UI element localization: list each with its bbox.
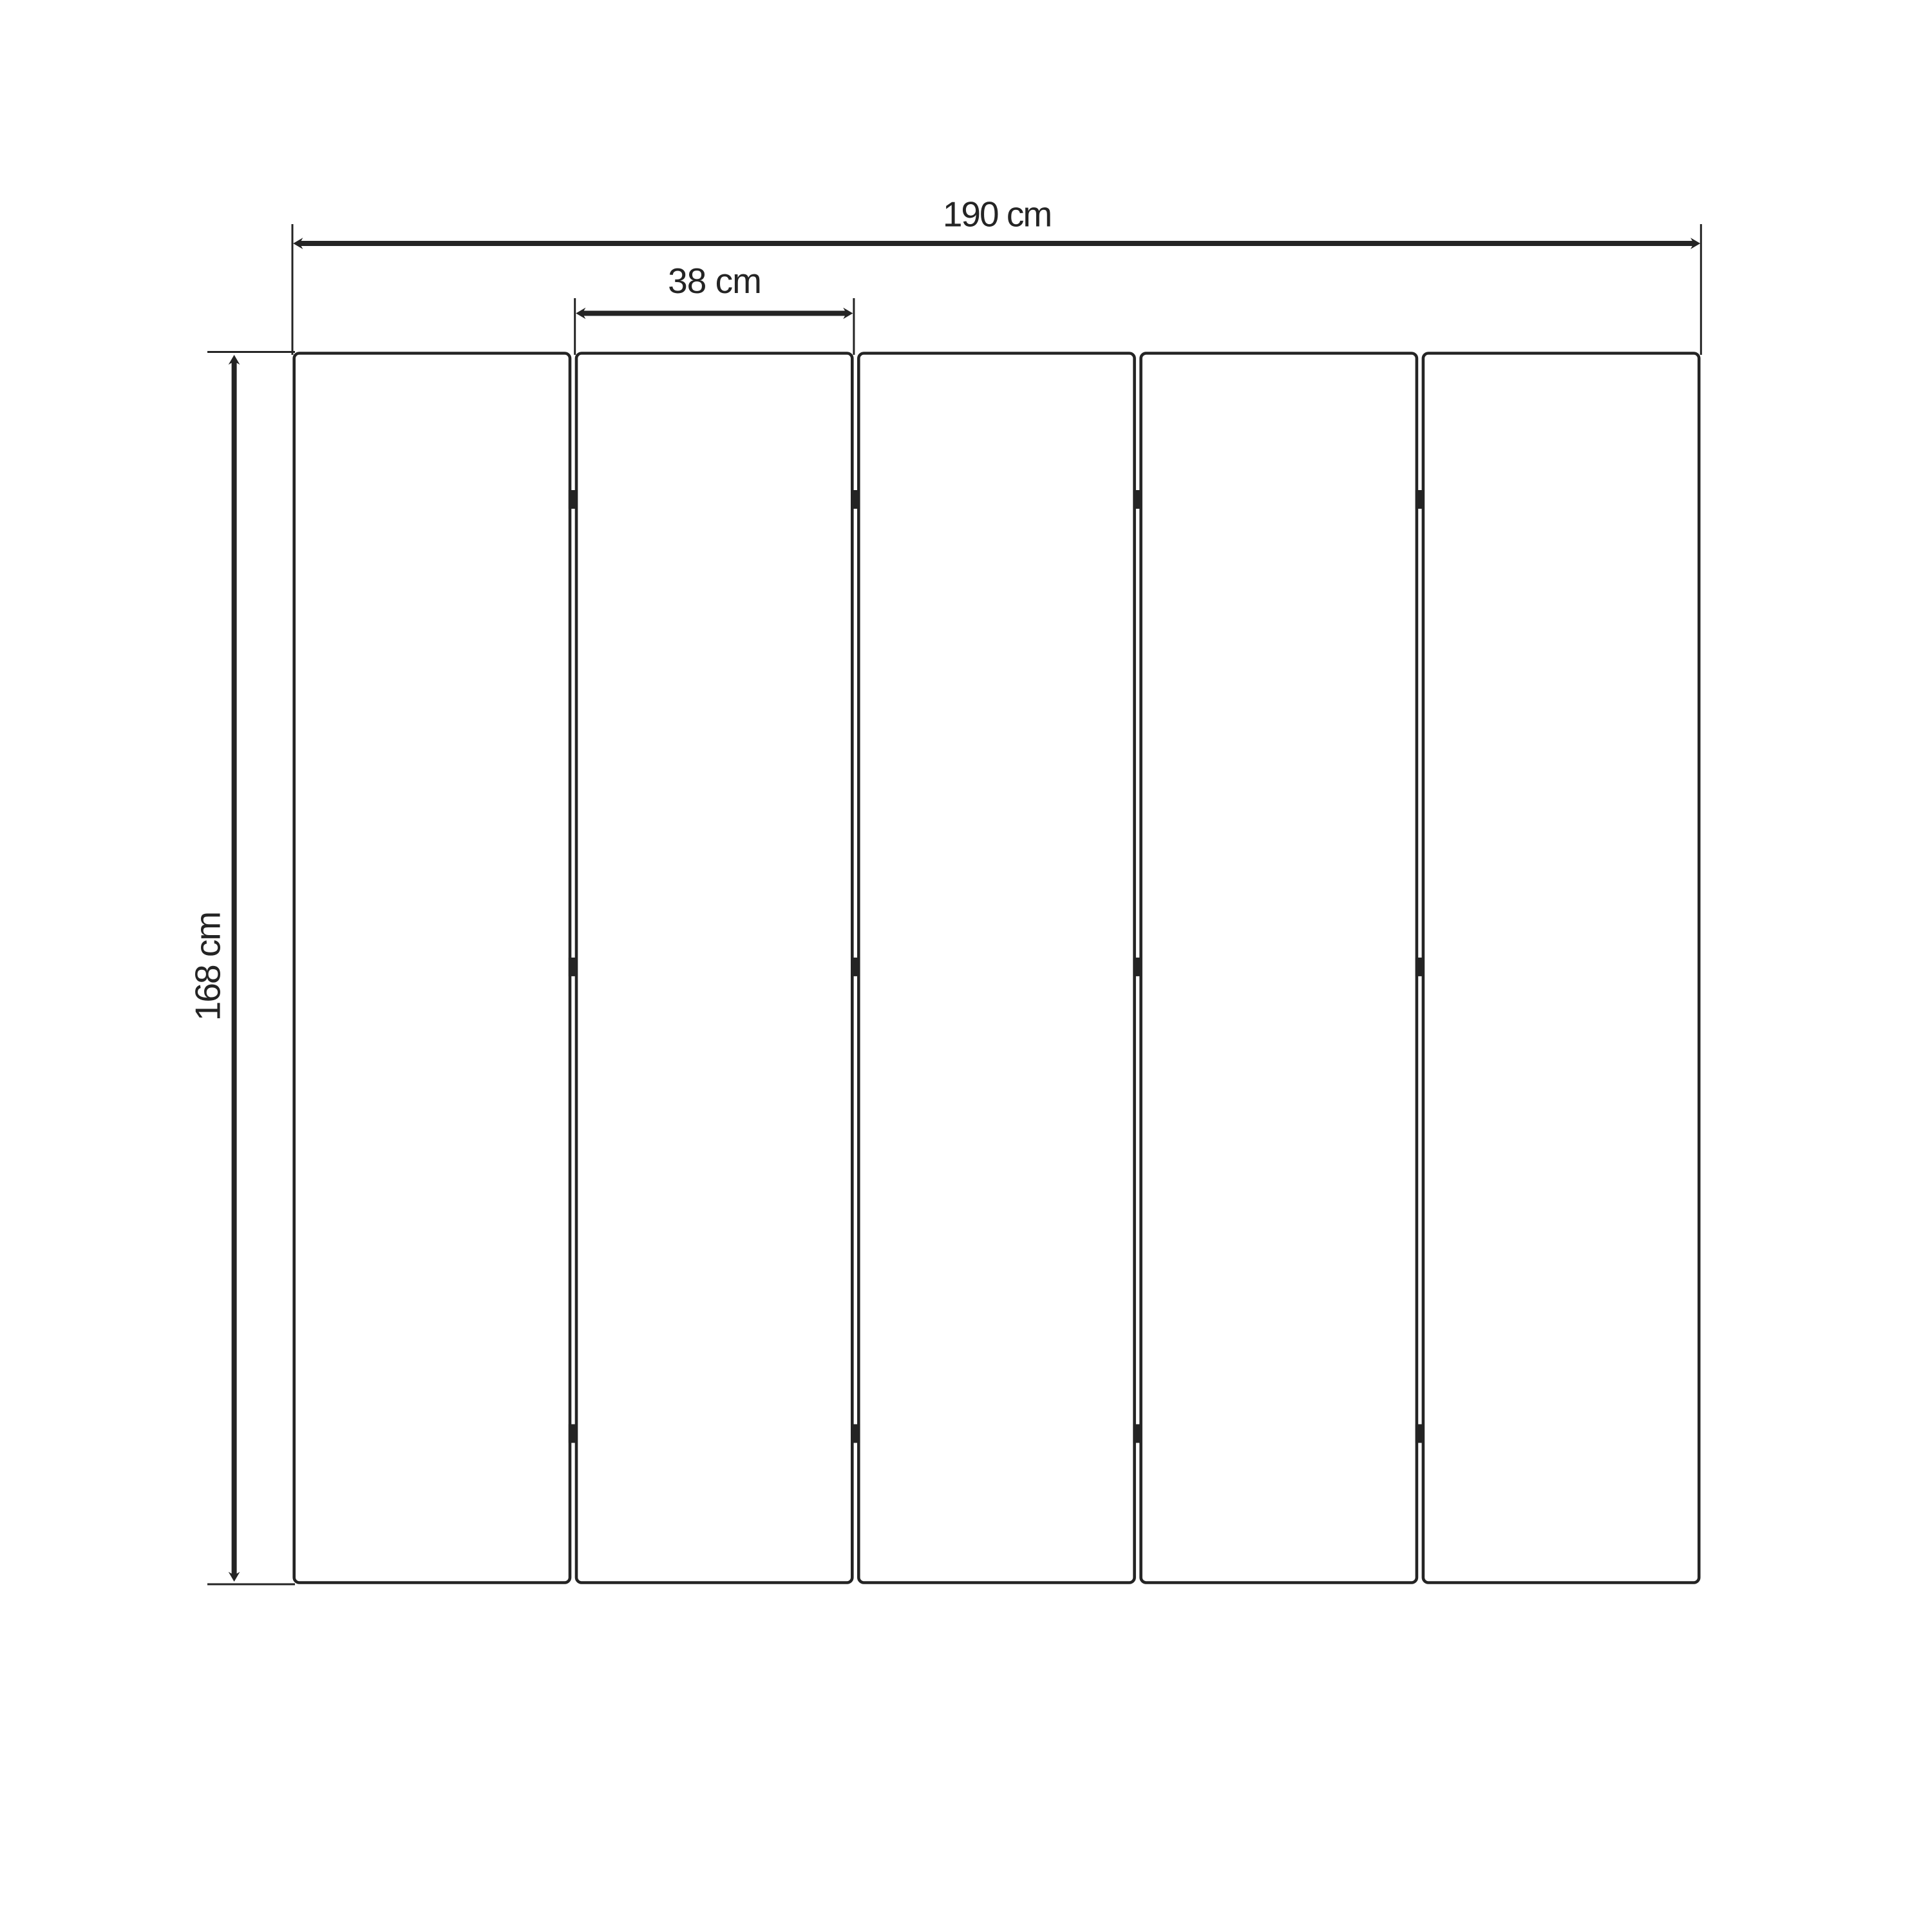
svg-text:190 cm: 190 cm <box>943 194 1051 234</box>
svg-text:168 cm: 168 cm <box>188 913 228 1021</box>
svg-text:38 cm: 38 cm <box>668 261 761 301</box>
